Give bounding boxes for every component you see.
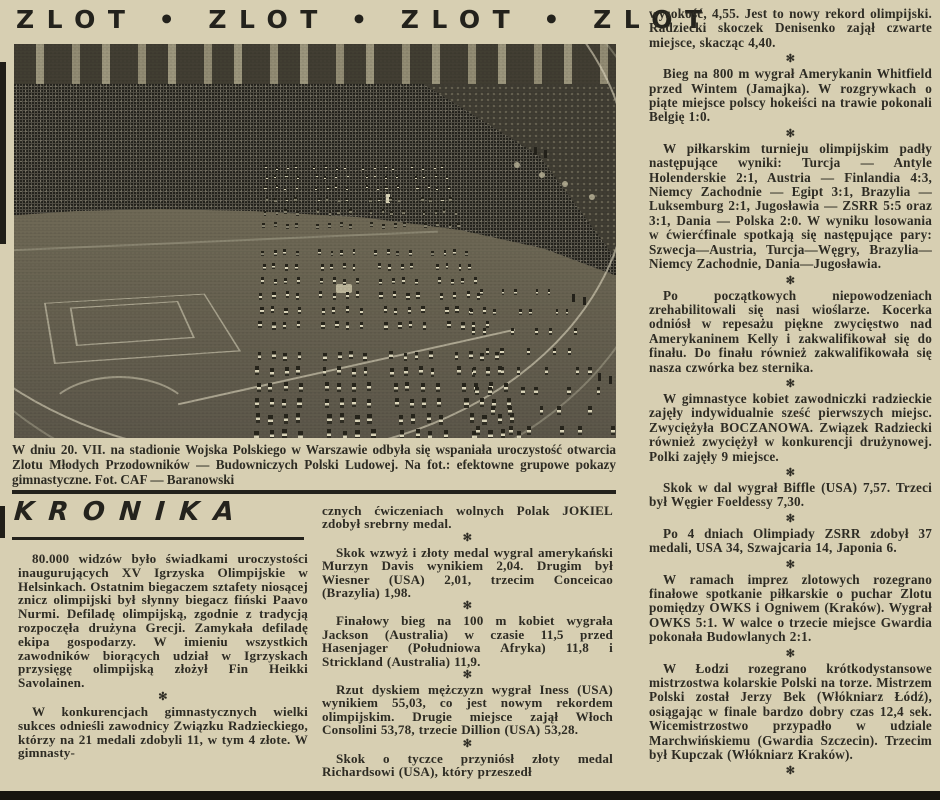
gymnast-figure: [404, 367, 408, 376]
gymnast-figure: [548, 289, 551, 295]
gymnast-figure: [286, 198, 288, 203]
gymnast-figure: [483, 328, 486, 335]
gymnast-figure: [270, 430, 275, 438]
gymnast-figure: [295, 165, 297, 169]
gymnast-figure: [421, 197, 423, 202]
gymnast-figure: [480, 289, 483, 295]
gymnast-figure: [299, 383, 303, 392]
gymnast-figure: [404, 353, 408, 361]
gymnast-figure: [436, 187, 438, 191]
article-paragraph: W Łodzi rozegrano krótkodystansowe mistr…: [649, 662, 932, 763]
photo-light-spot: [562, 181, 568, 187]
gymnast-figure: [346, 198, 348, 203]
gymnast-figure: [389, 351, 393, 359]
gymnast-figure: [296, 413, 300, 423]
article-paragraph: Po początkowych niepowodzeniach zrehabil…: [649, 289, 932, 375]
gymnast-figure: [396, 175, 398, 179]
section-separator-icon: ✻: [649, 512, 932, 526]
gymnast-figure: [371, 429, 376, 438]
gymnast-figure: [286, 291, 289, 298]
gymnast-figure: [397, 185, 399, 189]
gymnast-figure: [557, 406, 561, 415]
gymnast-figure: [495, 352, 499, 360]
gymnast-figure: [378, 263, 381, 269]
gymnast-figure: [266, 197, 268, 202]
gymnast-figure: [370, 210, 372, 215]
gymnast-figure: [346, 306, 349, 313]
gymnast-figure: [343, 431, 348, 438]
gymnast-figure: [338, 198, 340, 203]
gymnast-figure: [255, 398, 259, 407]
gymnast-figure: [349, 224, 352, 229]
gymnast-figure: [441, 165, 443, 169]
gymnast-figure: [353, 249, 356, 255]
gymnast-figure: [367, 399, 371, 408]
gymnast-figure: [436, 383, 440, 392]
article-paragraph: Po 4 dniach Olimpiady ZSRR zdobył 37 med…: [649, 527, 932, 556]
gymnast-figure: [355, 430, 360, 438]
gymnast-figure: [449, 197, 451, 202]
gymnast-figure: [394, 223, 397, 228]
gymnast-figure: [501, 367, 504, 375]
gymnast-figure: [282, 399, 286, 408]
gymnast-figure: [340, 413, 344, 423]
section-separator-icon: ✻: [649, 466, 932, 480]
article-paragraph: Skok o tyczce przyniósł złoty medal Rich…: [322, 752, 613, 779]
gymnast-figure: [270, 368, 274, 377]
gymnast-figure: [536, 289, 539, 295]
gymnast-figure: [264, 186, 266, 190]
gymnast-figure: [319, 291, 322, 298]
gymnast-figure: [337, 366, 341, 375]
gymnast-figure: [355, 415, 359, 425]
gymnast-figure: [364, 367, 368, 376]
gymnast-figure: [444, 250, 447, 256]
horizontal-rule: [12, 490, 616, 494]
gymnast-figure: [410, 399, 414, 408]
gymnast-figure: [367, 414, 371, 424]
gymnast-figure: [429, 198, 431, 203]
gymnast-figure: [509, 426, 513, 435]
gymnast-figure: [318, 249, 321, 255]
gymnast-figure: [488, 430, 493, 438]
gymnast-figure: [317, 209, 319, 214]
gymnast-figure: [333, 293, 336, 300]
gymnast-figure: [398, 322, 401, 330]
gymnast-figure: [315, 187, 317, 191]
gymnast-figure: [262, 223, 265, 228]
gymnast-figure: [385, 186, 387, 190]
photo-caption: W dniu 20. VII. na stadionie Wojska Pols…: [12, 442, 616, 487]
gymnast-figure: [470, 309, 473, 315]
gymnast-figure: [422, 167, 424, 171]
gymnast-figure: [374, 250, 377, 256]
gymnast-figure: [352, 398, 356, 407]
gymnast-figure: [276, 167, 278, 171]
gymnast-figure: [340, 222, 343, 227]
gymnast-figure: [353, 264, 356, 270]
gymnast-figure: [272, 351, 276, 359]
photo-light-spot: [514, 162, 520, 168]
gymnast-figure: [360, 322, 363, 330]
gymnast-figure: [329, 211, 331, 216]
gymnast-figure: [295, 223, 298, 228]
gymnast-figure: [316, 224, 319, 229]
gymnast-figure: [483, 307, 486, 314]
gymnast-figure: [366, 185, 368, 189]
gymnast-figure: [427, 413, 431, 423]
gymnast-figure: [324, 176, 326, 180]
gymnast-figure: [416, 292, 419, 299]
gymnast-figure: [410, 263, 413, 269]
section-separator-icon: ✻: [322, 669, 613, 682]
gymnast-figure: [415, 176, 417, 180]
gymnast-figure: [325, 399, 329, 408]
gymnast-figure: [440, 293, 443, 300]
gymnast-figure: [343, 263, 346, 269]
gymnast-figure: [473, 367, 476, 375]
gymnast-figure: [313, 166, 315, 170]
gymnast-figure: [323, 353, 327, 361]
gymnast-figure: [271, 306, 274, 313]
gymnast-figure: [411, 165, 413, 169]
gymnast-figure: [297, 277, 300, 284]
gymnast-figure: [423, 322, 426, 330]
gymnast-figure: [347, 174, 349, 178]
column-middle: cznych ćwiczeniach wolnych Polak JOKIEL …: [322, 504, 613, 779]
gymnast-figure: [446, 176, 448, 180]
gymnast-figure: [392, 278, 395, 285]
gymnast-figure: [387, 249, 390, 255]
gymnast-figure: [340, 398, 344, 407]
gymnast-figure: [549, 328, 552, 335]
section-separator-icon: ✻: [649, 127, 932, 141]
gymnast-figure: [333, 277, 336, 284]
gymnast-figure: [389, 197, 391, 202]
gymnast-figure: [274, 198, 276, 203]
gymnast-figure: [431, 368, 435, 377]
gymnast-figure: [321, 264, 324, 270]
gymnast-figure: [332, 307, 335, 314]
gymnast-figure: [326, 197, 328, 202]
gymnast-figure: [352, 383, 356, 392]
gymnast-figure: [298, 352, 302, 360]
gymnast-figure: [369, 198, 371, 203]
gymnast-figure: [274, 222, 277, 227]
gymnast-figure: [282, 429, 287, 438]
gymnast-figure: [408, 307, 411, 314]
gymnast-figure: [259, 293, 262, 300]
gymnast-figure: [491, 406, 495, 415]
article-paragraph: Bieg na 800 m wygrał Amerykanin Whitfiel…: [649, 67, 932, 125]
gymnast-figure: [284, 382, 288, 391]
gymnast-figure: [588, 367, 591, 375]
gymnast-figure: [423, 175, 425, 179]
article-paragraph: cznych ćwiczeniach wolnych Polak JOKIEL …: [322, 504, 613, 531]
gymnast-figure: [419, 366, 423, 375]
article-paragraph: wysokość, 4,55. Jest to nowy rekord olim…: [649, 7, 932, 50]
gymnast-figure: [349, 209, 351, 214]
gymnast-figure: [284, 414, 288, 424]
gymnast-figure: [403, 222, 406, 227]
gymnast-figure: [486, 348, 489, 355]
gymnast-figure: [322, 308, 325, 315]
gymnast-figure: [501, 429, 506, 438]
gymnast-figure: [330, 264, 333, 270]
gymnast-figure: [260, 307, 263, 314]
gymnast-figure: [468, 264, 471, 270]
gymnast-figure: [421, 306, 424, 313]
gymnast-figure: [337, 383, 341, 392]
gymnast-figure: [597, 387, 601, 395]
gymnast-figure: [498, 414, 502, 424]
gymnast-figure: [493, 309, 496, 315]
kronika-section-title: KRONIKA: [13, 497, 315, 527]
gymnast-figure: [336, 167, 338, 171]
gymnast-figure: [400, 430, 405, 438]
gymnast-figure: [422, 398, 426, 407]
gymnast-figure: [470, 413, 474, 423]
gymnast-figure: [534, 387, 538, 395]
gymnast-figure: [415, 279, 418, 286]
newspaper-page: ZLOT • ZLOT • ZLOT • ZLOT W dniu 20. VII…: [0, 0, 940, 800]
gymnast-figure: [576, 367, 579, 375]
gymnast-figure: [435, 210, 437, 215]
gymnast-figure: [488, 387, 492, 395]
gymnast-figure: [316, 174, 318, 178]
gymnast-figure: [297, 398, 301, 407]
photo-light-spot: [539, 172, 545, 178]
gymnast-figure: [374, 166, 376, 170]
gymnast-figure: [482, 415, 486, 425]
gymnast-figure: [263, 264, 266, 270]
gymnast-figure: [435, 174, 437, 178]
section-separator-icon: ✻: [18, 691, 308, 704]
gymnast-figure: [588, 406, 592, 415]
gymnast-figure: [285, 367, 289, 376]
gymnast-figure: [268, 415, 272, 425]
gymnast-figure: [398, 198, 400, 203]
gymnast-figure: [462, 383, 466, 392]
gymnast-figure: [384, 322, 387, 330]
gymnast-figure: [451, 279, 454, 286]
gymnast-figure: [394, 383, 398, 392]
gymnast-figure: [270, 398, 274, 407]
gymnast-figure: [352, 368, 356, 377]
gymnast-figure: [268, 383, 272, 392]
photo-official-figure: [583, 297, 586, 305]
gymnast-figure: [276, 185, 278, 189]
gymnast-figure: [455, 306, 458, 313]
gymnast-figure: [566, 309, 569, 315]
gymnast-figure: [331, 251, 334, 257]
gymnast-figure: [272, 322, 275, 330]
gymnast-figure: [402, 210, 404, 215]
gymnast-figure: [449, 224, 452, 229]
gymnast-figure: [461, 278, 464, 285]
gymnast-figure: [465, 251, 468, 257]
gymnast-figure: [443, 209, 445, 214]
gymnast-figure: [459, 264, 462, 270]
gymnast-figure: [261, 251, 264, 257]
gymnast-figure: [379, 279, 382, 286]
gymnast-figure: [567, 387, 571, 395]
gymnast-figure: [327, 186, 329, 190]
article-paragraph: Skok wzwyż i złoty medal wygral amerykań…: [322, 546, 613, 600]
gymnast-figure: [384, 306, 387, 313]
gymnast-figure: [335, 185, 337, 189]
gymnast-figure: [475, 387, 479, 395]
gymnast-figure: [340, 250, 343, 256]
gymnast-figure: [284, 308, 287, 315]
gymnast-figure: [382, 224, 385, 229]
section-separator-icon: ✻: [322, 738, 613, 751]
gymnast-figure: [399, 415, 403, 425]
gymnast-figure: [285, 174, 287, 178]
gymnast-figure: [379, 292, 382, 299]
section-separator-icon: ✻: [649, 52, 932, 66]
section-separator-icon: ✻: [649, 647, 932, 661]
gymnast-figure: [437, 398, 441, 407]
gymnast-figure: [377, 187, 379, 191]
gymnast-figure: [438, 277, 441, 284]
article-paragraph: Finałowy bieg na 100 m kobiet wygrała Ja…: [322, 614, 613, 668]
gymnast-figure: [254, 431, 259, 438]
gymnast-figure: [390, 211, 392, 216]
photo-light-spot: [589, 194, 595, 200]
gymnast-figure: [556, 309, 559, 315]
gymnast-figure: [374, 174, 376, 178]
gymnast-figure: [519, 309, 522, 315]
gymnast-figure: [453, 292, 456, 299]
photo-official-figure: [544, 150, 547, 158]
photo-official-figure: [609, 376, 612, 384]
gymnast-figure: [295, 264, 298, 270]
gymnast-figure: [284, 209, 286, 214]
gymnast-figure: [321, 322, 324, 330]
gymnast-figure: [611, 426, 615, 435]
gymnast-figure: [416, 186, 418, 190]
gymnast-figure: [286, 224, 289, 229]
gymnast-figure: [527, 348, 530, 355]
gymnast-figure: [287, 166, 289, 170]
gymnast-figure: [274, 279, 277, 286]
gymnast-figure: [298, 431, 303, 438]
gymnast-figure: [535, 328, 538, 335]
gymnast-figure: [545, 367, 548, 375]
gymnast-figure: [283, 322, 286, 330]
gymnast-figure: [405, 382, 409, 391]
gymnast-figure: [395, 398, 399, 407]
article-paragraph: Skok w dal wygrał Biffle (USA) 7,57. Trz…: [649, 481, 932, 510]
gymnast-figure: [529, 309, 532, 315]
gymnast-figure: [255, 366, 259, 375]
gymnast-figure: [517, 367, 520, 375]
gymnast-figure: [521, 387, 525, 395]
gymnast-figure: [469, 351, 473, 359]
gymnast-figure: [323, 367, 327, 376]
gymnast-figure: [296, 366, 300, 375]
gymnast-figure: [385, 165, 387, 169]
gymnast-figure: [472, 328, 475, 335]
gymnast-figure: [362, 167, 364, 171]
gymnast-figure: [486, 321, 489, 329]
gymnast-figure: [578, 426, 582, 435]
gymnast-figure: [344, 166, 346, 170]
gymnast-figure: [446, 263, 449, 269]
gymnast-figure: [296, 293, 299, 300]
gymnast-figure: [447, 321, 450, 329]
gymnast-figure: [464, 398, 468, 407]
gymnast-figure: [574, 328, 577, 335]
photo-official-figure: [572, 294, 575, 302]
page-edge-artifact: [0, 62, 6, 244]
gymnast-figure: [504, 383, 508, 392]
gymnast-figure: [428, 185, 430, 189]
gymnast-figure: [266, 176, 268, 180]
gymnast-figure: [560, 426, 564, 435]
gymnast-figure: [396, 251, 399, 257]
gymnast-figure: [431, 251, 434, 257]
gymnast-figure: [265, 165, 267, 169]
gymnast-figure: [258, 352, 262, 360]
section-separator-icon: ✻: [649, 558, 932, 572]
page-headline: ZLOT • ZLOT • ZLOT • ZLOT: [16, 5, 620, 34]
gymnast-figure: [527, 426, 531, 435]
gymnast-figure: [540, 406, 544, 415]
gymnast-figure: [356, 291, 359, 298]
gymnast-figure: [360, 308, 363, 315]
photo-official-figure: [598, 373, 601, 381]
gymnast-figure: [349, 351, 353, 359]
gymnast-figure: [335, 175, 337, 179]
gymnast-figure: [328, 223, 331, 228]
gymnast-figure: [297, 176, 299, 180]
gymnast-figure: [429, 351, 433, 359]
gymnast-figure: [388, 264, 391, 270]
gymnast-figure: [415, 352, 419, 360]
gymnast-figure: [366, 175, 368, 179]
gymnast-figure: [346, 322, 349, 330]
gymnast-figure: [296, 251, 299, 257]
gymnast-figure: [409, 250, 412, 256]
gymnast-figure: [508, 406, 512, 415]
gymnast-figure: [448, 186, 450, 190]
gymnast-figure: [318, 198, 320, 203]
column-right: wysokość, 4,55. Jest to nowy rekord olim…: [649, 7, 932, 779]
section-separator-icon: ✻: [649, 274, 932, 288]
gymnast-figure: [436, 264, 439, 270]
gymnast-figure: [338, 352, 342, 360]
gymnast-figure: [284, 187, 286, 191]
article-paragraph: W ramach imprez zlotowych rozegrano fina…: [649, 573, 932, 645]
gymnast-figure: [367, 382, 371, 391]
gymnast-figure: [264, 211, 266, 216]
gymnast-figure: [298, 307, 301, 314]
gymnast-figure: [457, 366, 461, 375]
gymnast-figure: [296, 211, 298, 216]
gymnast-figure: [256, 413, 260, 423]
gymnast-figure: [320, 278, 323, 285]
gymnast-figure: [500, 348, 503, 355]
gymnast-figure: [390, 368, 394, 377]
gymnast-figure: [416, 429, 421, 438]
gymnast-figure: [272, 292, 275, 299]
gymnast-figure: [284, 278, 287, 285]
gymnast-figure: [327, 429, 332, 438]
gymnast-figure: [382, 209, 384, 214]
gymnast-figure: [363, 353, 367, 361]
